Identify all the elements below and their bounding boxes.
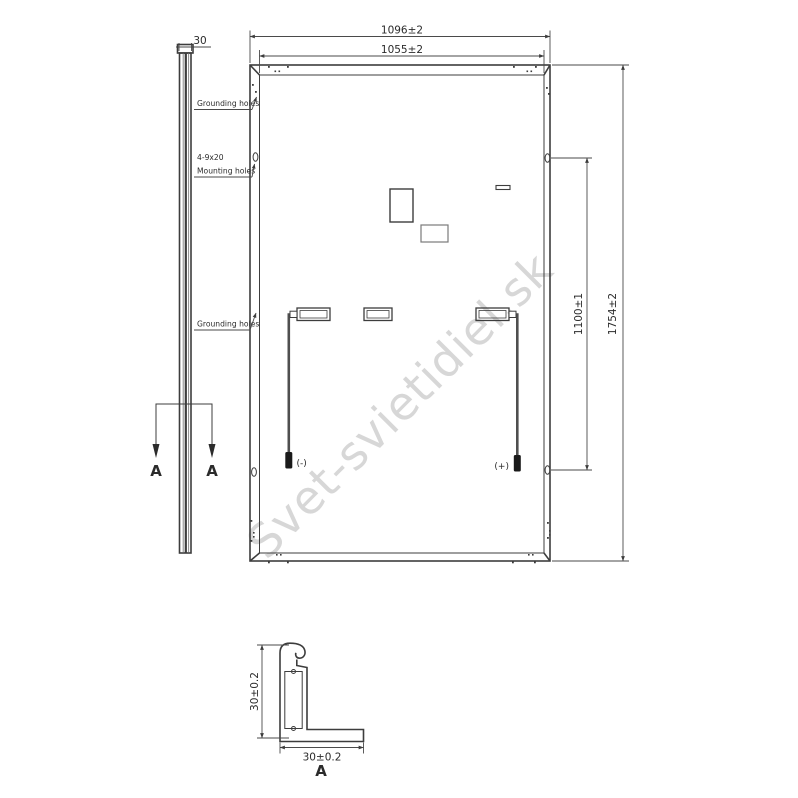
inner-width-label: 1055±2 <box>381 44 423 56</box>
positive-label: (+) <box>494 462 509 472</box>
technical-drawing-canvas: Svet-svietidiel.sk 30 <box>0 0 798 798</box>
grounding-holes-mid-label: Grounding holes <box>197 320 259 329</box>
junction-box-middle <box>364 308 392 321</box>
section-cut-indicator: A A <box>150 404 218 480</box>
section-arrow-right <box>209 444 216 458</box>
dim-inner-width: 1055±2 <box>260 44 545 73</box>
detail-title: A <box>315 762 327 780</box>
mounting-span-label: 1100±1 <box>573 293 585 335</box>
dim-mounting-span: 1100±1 <box>551 158 592 470</box>
drawing-svg: 30 A A <box>0 0 798 798</box>
thickness-dim-label: 30 <box>193 35 206 47</box>
junction-box-left: (-) <box>285 308 330 469</box>
barcode-strip <box>496 186 510 190</box>
section-label-left: A <box>150 462 162 480</box>
detail-height-label: 30±0.2 <box>249 672 261 711</box>
outer-height-label: 1754±2 <box>607 293 619 335</box>
section-arrow-left <box>153 444 160 458</box>
nameplate-box <box>390 189 413 222</box>
negative-connector <box>285 452 292 469</box>
mounting-holes-label-line1: 4-9x20 <box>197 153 224 162</box>
callout-mounting: 4-9x20 Mounting holes <box>194 153 255 177</box>
profile-top-cap <box>178 45 194 54</box>
positive-cable <box>516 315 517 456</box>
outer-width-label: 1096±2 <box>381 25 423 37</box>
negative-cable <box>289 315 290 453</box>
label-box <box>421 225 448 242</box>
junction-box-right: (+) <box>476 308 521 472</box>
callout-grounding-top: Grounding holes <box>194 97 259 110</box>
profile-hollow <box>285 672 302 729</box>
cable-gland-right <box>509 311 516 317</box>
cable-gland-left <box>290 311 297 317</box>
section-label-right: A <box>206 462 218 480</box>
panel-inner-frame <box>260 75 545 553</box>
detail-dim-height: 30±0.2 <box>249 645 289 738</box>
dim-outer-height: 1754±2 <box>552 65 629 561</box>
frame-cross-section-detail: 30±0.2 30±0.2 A <box>249 643 364 780</box>
negative-label: (-) <box>297 459 307 469</box>
grounding-holes-top-label: Grounding holes <box>197 99 259 108</box>
rear-view: (-) (+) Grounding holes 4-9x20 <box>194 25 629 564</box>
detail-dim-width: 30±0.2 <box>280 743 364 764</box>
mounting-holes-label-line2: Mounting holes <box>197 167 255 176</box>
positive-connector <box>514 455 521 472</box>
